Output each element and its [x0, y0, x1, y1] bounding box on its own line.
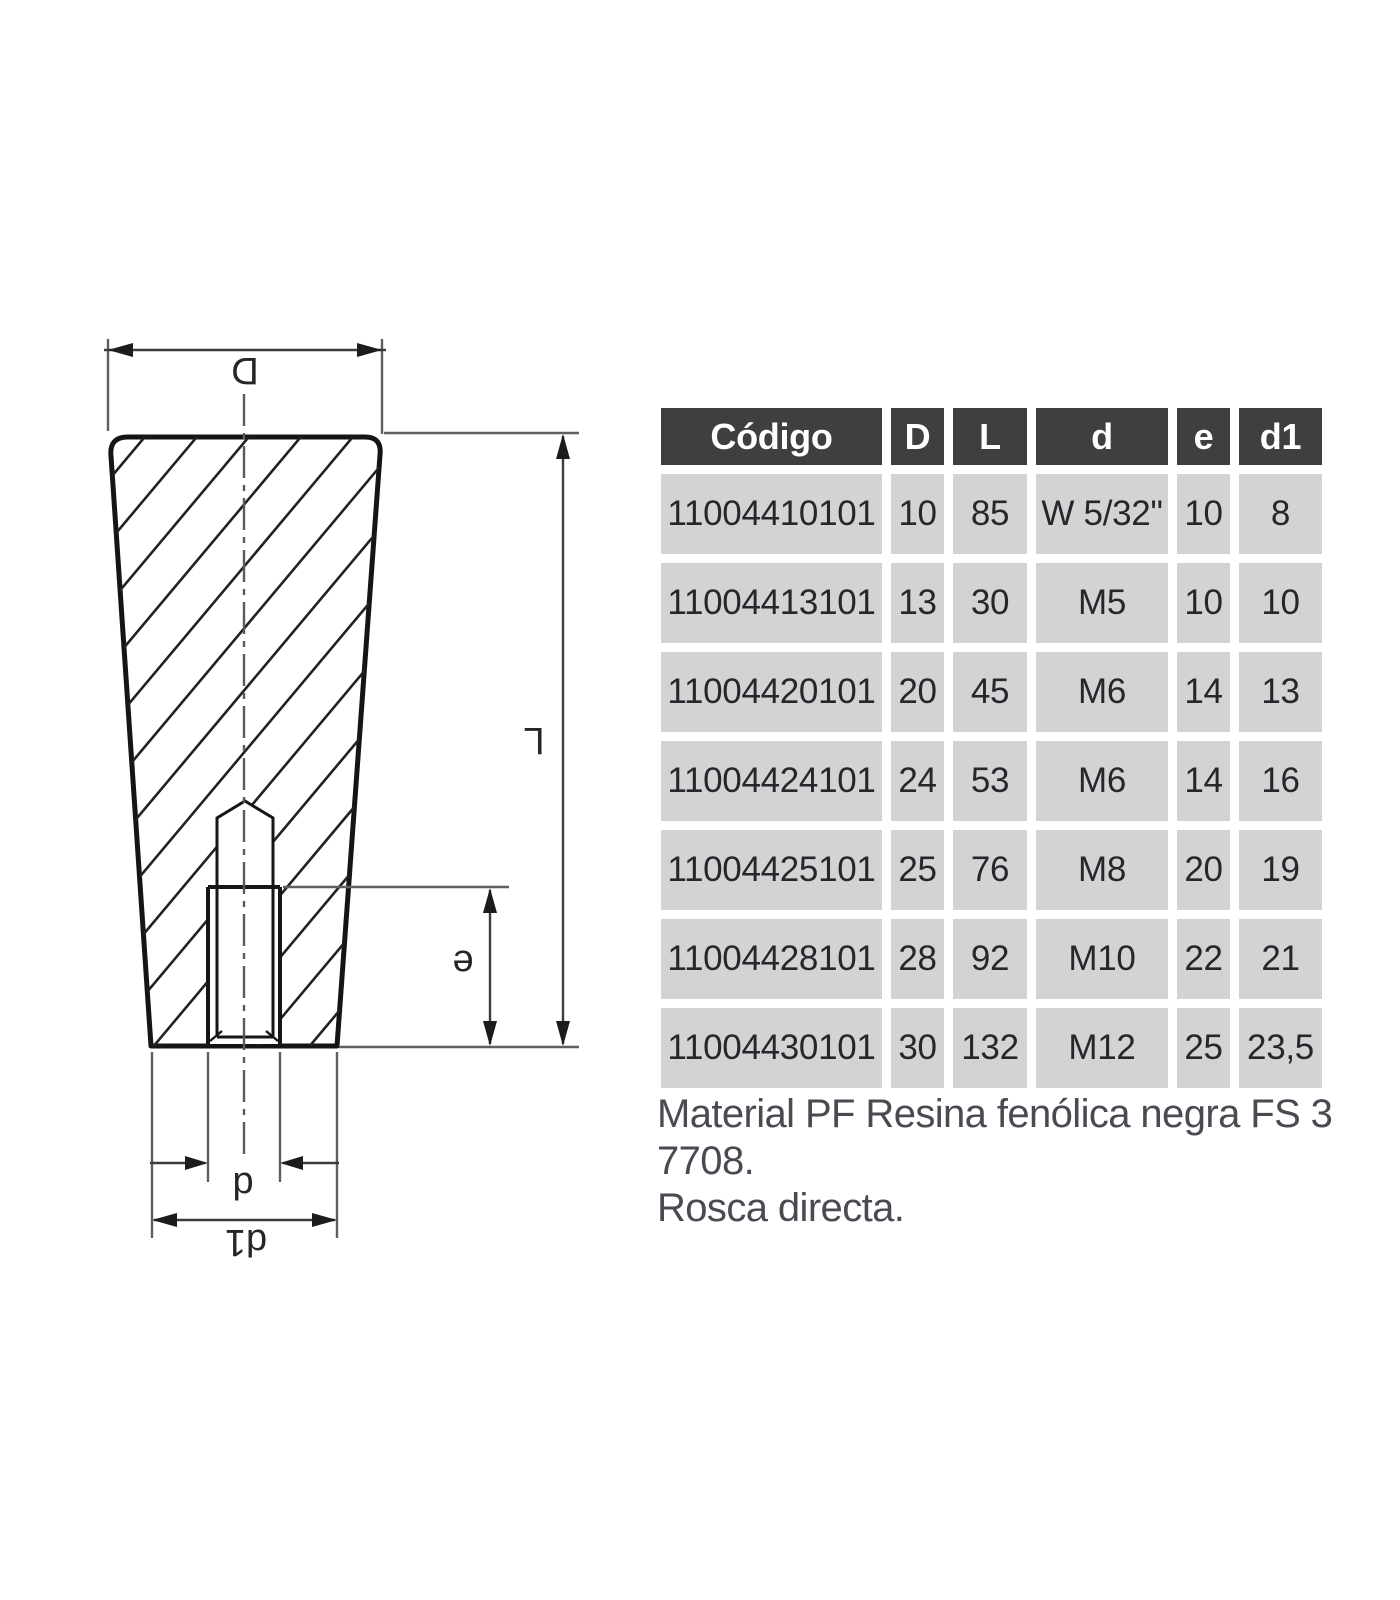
col-header-D: D: [891, 408, 944, 465]
col-header-L: L: [953, 408, 1027, 465]
cell-d: M10: [1036, 919, 1168, 999]
cell-e: 20: [1177, 830, 1230, 910]
cell-d1: 16: [1239, 741, 1322, 821]
col-header-d: d: [1036, 408, 1168, 465]
note-line-rosca: Rosca directa.: [657, 1185, 1347, 1232]
cell-d1: 23,5: [1239, 1008, 1322, 1088]
cell-d1: 8: [1239, 474, 1322, 554]
cell-d1: 10: [1239, 563, 1322, 643]
cell-d: M12: [1036, 1008, 1168, 1088]
dim-label-d1: d1: [225, 1221, 267, 1263]
cell-codigo: 11004424101: [661, 741, 882, 821]
cell-e: 10: [1177, 474, 1230, 554]
dim-label-d: d: [232, 1164, 253, 1206]
cell-codigo: 11004420101: [661, 652, 882, 732]
col-header-codigo: Código: [661, 408, 882, 465]
catalog-page: D L e d: [0, 0, 1400, 1600]
cell-d: M8: [1036, 830, 1168, 910]
cell-codigo: 11004430101: [661, 1008, 882, 1088]
cell-e: 10: [1177, 563, 1230, 643]
note-line-material: Material PF Resina fenólica negra FS 3: [657, 1091, 1347, 1138]
cell-L: 85: [953, 474, 1027, 554]
cell-D: 25: [891, 830, 944, 910]
cell-d: M5: [1036, 563, 1168, 643]
cell-d1: 13: [1239, 652, 1322, 732]
cell-D: 10: [891, 474, 944, 554]
cell-L: 92: [953, 919, 1027, 999]
spec-table: Código D L d e d1 11004410101 10 85 W 5/…: [661, 408, 1322, 1088]
cell-e: 14: [1177, 741, 1230, 821]
cell-D: 20: [891, 652, 944, 732]
cell-codigo: 11004410101: [661, 474, 882, 554]
cell-D: 13: [891, 563, 944, 643]
note-line-material-cont: 7708.: [657, 1138, 1347, 1185]
cell-L: 45: [953, 652, 1027, 732]
cell-D: 24: [891, 741, 944, 821]
cell-L: 76: [953, 830, 1027, 910]
dim-label-L: L: [523, 719, 544, 761]
dim-label-e: e: [452, 942, 473, 984]
cell-codigo: 11004428101: [661, 919, 882, 999]
dim-label-D: D: [231, 349, 258, 391]
material-notes: Material PF Resina fenólica negra FS 3 7…: [657, 1091, 1347, 1232]
cell-codigo: 11004425101: [661, 830, 882, 910]
cell-d1: 19: [1239, 830, 1322, 910]
cell-e: 25: [1177, 1008, 1230, 1088]
cell-L: 53: [953, 741, 1027, 821]
cell-D: 30: [891, 1008, 944, 1088]
col-header-d1: d1: [1239, 408, 1322, 465]
cell-codigo: 11004413101: [661, 563, 882, 643]
cell-D: 28: [891, 919, 944, 999]
cell-d1: 21: [1239, 919, 1322, 999]
cell-d: M6: [1036, 741, 1168, 821]
cell-e: 22: [1177, 919, 1230, 999]
cell-L: 132: [953, 1008, 1027, 1088]
cell-d: W 5/32": [1036, 474, 1168, 554]
cell-L: 30: [953, 563, 1027, 643]
cell-e: 14: [1177, 652, 1230, 732]
cell-d: M6: [1036, 652, 1168, 732]
col-header-e: e: [1177, 408, 1230, 465]
